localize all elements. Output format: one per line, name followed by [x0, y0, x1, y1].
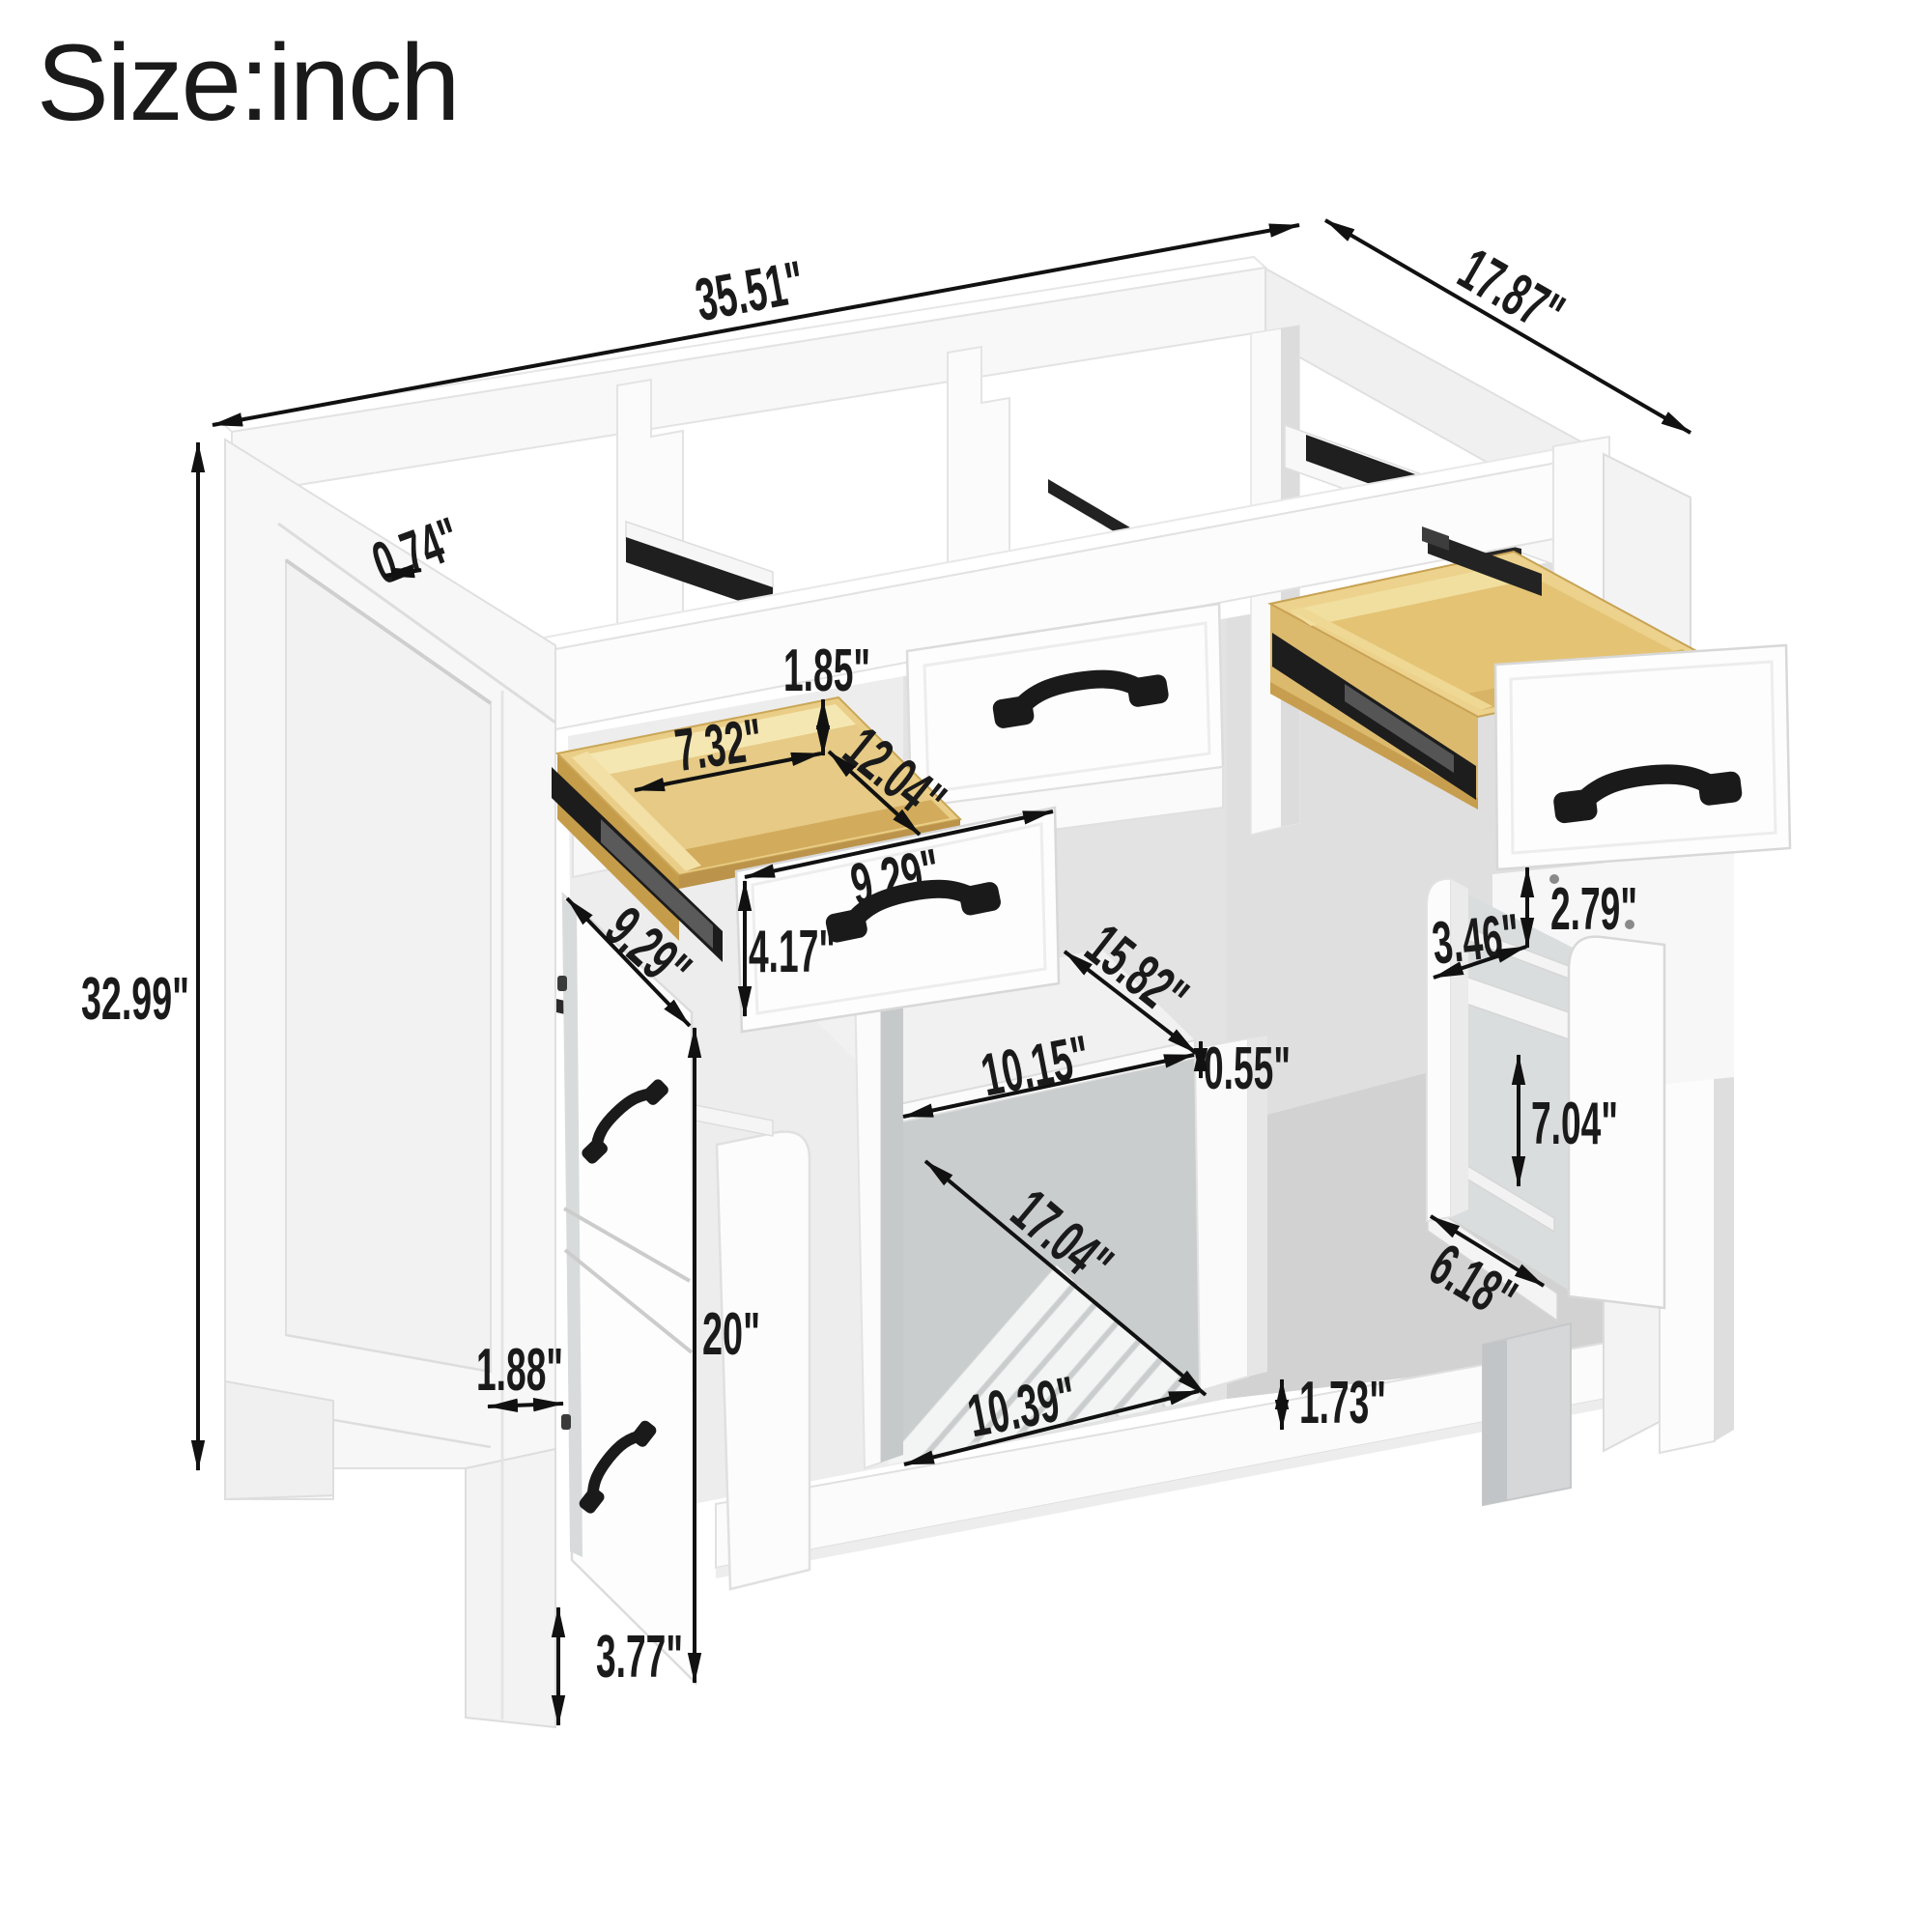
svg-text:3.46": 3.46" [1429, 902, 1522, 978]
svg-text:1.73": 1.73" [1299, 1370, 1386, 1436]
svg-text:2.79": 2.79" [1550, 876, 1637, 943]
svg-text:32.99": 32.99" [81, 966, 189, 1033]
svg-text:20": 20" [702, 1301, 760, 1368]
svg-text:1.88": 1.88" [476, 1337, 563, 1404]
svg-text:Size:inch: Size:inch [37, 22, 458, 143]
svg-text:1.85": 1.85" [783, 638, 870, 704]
svg-text:4.17": 4.17" [749, 919, 836, 985]
svg-text:0.55": 0.55" [1204, 1036, 1291, 1102]
svg-text:7.04": 7.04" [1531, 1091, 1618, 1157]
svg-text:3.77": 3.77" [596, 1624, 683, 1690]
